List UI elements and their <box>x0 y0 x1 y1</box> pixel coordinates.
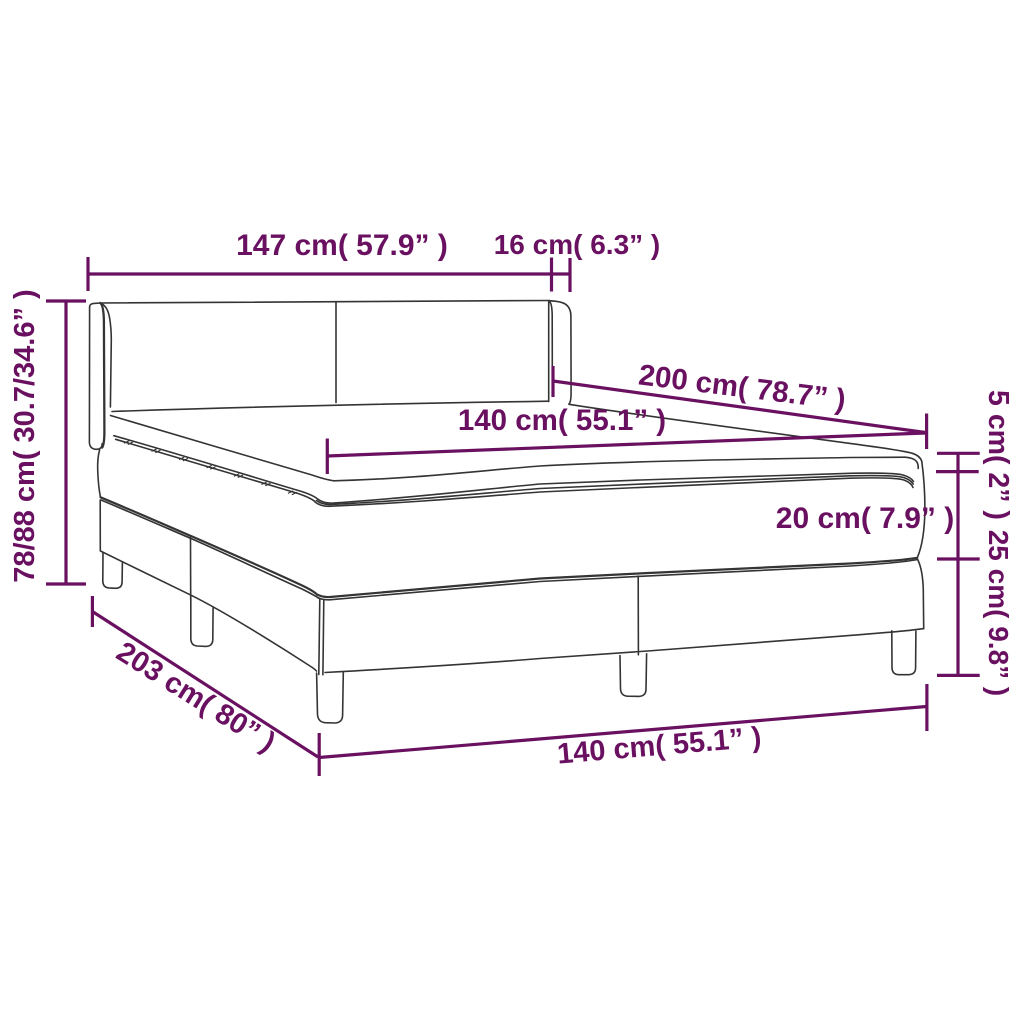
svg-text:140 cm( 55.1” ): 140 cm( 55.1” ) <box>458 404 666 437</box>
svg-text:20 cm( 7.9” ): 20 cm( 7.9” ) <box>776 502 954 535</box>
svg-text:16 cm( 6.3” ): 16 cm( 6.3” ) <box>494 229 661 260</box>
svg-text:5 cm( 2” ): 5 cm( 2” ) <box>982 390 1014 520</box>
svg-text:147 cm( 57.9” ): 147 cm( 57.9” ) <box>236 229 448 262</box>
svg-text:78/88 cm( 30.7/34.6” ): 78/88 cm( 30.7/34.6” ) <box>9 289 41 582</box>
svg-text:25 cm( 9.8” ): 25 cm( 9.8” ) <box>983 530 1014 697</box>
svg-text:203 cm( 80” ): 203 cm( 80” ) <box>111 636 281 759</box>
